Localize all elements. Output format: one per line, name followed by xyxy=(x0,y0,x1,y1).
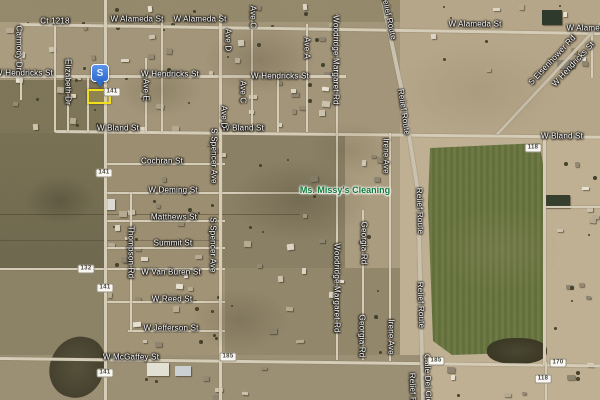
street-label: Ave C xyxy=(249,6,258,29)
vegetation xyxy=(153,200,156,203)
vegetation xyxy=(554,327,557,330)
satellite-map[interactable]: S Ms. Missy's Cleaning Ct 1218W Alameda … xyxy=(0,0,600,400)
building xyxy=(269,328,277,334)
vegetation xyxy=(443,6,445,8)
building xyxy=(257,264,262,268)
vegetation xyxy=(262,231,264,233)
crop-field xyxy=(420,140,546,356)
street-label: Ave D xyxy=(220,106,229,129)
vegetation xyxy=(211,204,214,207)
building xyxy=(149,35,155,40)
building xyxy=(557,229,563,232)
vegetation xyxy=(374,315,378,319)
road-segment xyxy=(54,20,56,132)
street-label: W Hendricks St xyxy=(141,70,199,79)
building xyxy=(175,366,191,376)
building xyxy=(188,287,193,291)
vegetation xyxy=(145,378,148,381)
vegetation xyxy=(195,307,199,311)
street-label: Ave C xyxy=(239,81,248,104)
building xyxy=(303,214,307,218)
street-label: W Hendricks St xyxy=(251,72,309,81)
street-label: Carmody Dr xyxy=(15,25,24,70)
building xyxy=(203,376,209,381)
building xyxy=(319,110,325,116)
vegetation xyxy=(227,56,229,58)
building xyxy=(582,187,589,190)
building xyxy=(155,342,162,347)
building xyxy=(6,28,14,33)
street-label: Woodridge Margaret Rd xyxy=(333,243,342,332)
building xyxy=(143,340,147,343)
building xyxy=(362,160,367,166)
street-label: Ave A xyxy=(303,37,312,59)
building xyxy=(148,54,154,59)
building xyxy=(156,204,160,208)
vegetation xyxy=(113,226,115,228)
terrain-south-center xyxy=(225,268,400,358)
vegetation xyxy=(188,208,192,212)
vegetation xyxy=(287,159,289,161)
vegetation xyxy=(321,63,325,67)
building xyxy=(579,283,584,287)
route-shield: 141 xyxy=(97,369,114,378)
street-label: W Hendricks St xyxy=(0,69,53,78)
vegetation xyxy=(379,351,382,354)
street-label: Ave D xyxy=(224,29,233,52)
building xyxy=(242,392,248,396)
street-label: Thompson Rd xyxy=(127,226,136,278)
vegetation xyxy=(257,43,261,47)
building xyxy=(567,375,575,380)
street-label: W Deming St xyxy=(148,186,197,195)
vegetation xyxy=(304,12,308,16)
street-label: Woodridge Margaret Rd xyxy=(332,15,341,104)
building xyxy=(33,124,39,130)
street-label: Georgia Rd xyxy=(360,222,369,265)
route-shield: 185 xyxy=(428,357,445,366)
route-shield: 141 xyxy=(104,88,121,97)
street-label: Irene Ave xyxy=(382,138,391,173)
marker-pin-tip xyxy=(96,81,104,87)
vegetation xyxy=(559,5,561,7)
vegetation xyxy=(457,394,460,397)
vegetation xyxy=(211,310,214,313)
vegetation xyxy=(576,371,580,375)
building xyxy=(148,6,153,12)
vegetation xyxy=(83,67,86,70)
terrain-south-grid xyxy=(105,268,225,358)
route-shield: 170 xyxy=(550,359,567,368)
vegetation xyxy=(443,58,446,61)
building xyxy=(287,244,295,251)
building xyxy=(121,59,129,62)
terrain-center-block xyxy=(223,133,345,268)
building xyxy=(286,307,293,311)
street-label: W Alameda St xyxy=(173,15,226,24)
vegetation xyxy=(570,286,574,290)
road-segment xyxy=(219,14,222,400)
building xyxy=(589,218,597,224)
building xyxy=(106,199,115,210)
building xyxy=(310,176,319,183)
street-label: W Jefferson St xyxy=(143,324,198,333)
vegetation xyxy=(215,337,218,340)
vegetation xyxy=(163,29,165,31)
vegetation xyxy=(94,109,96,111)
road-segment xyxy=(545,206,600,208)
vegetation xyxy=(313,195,316,198)
road-segment xyxy=(87,76,89,132)
route-shield: 141 xyxy=(97,284,114,293)
building xyxy=(176,284,183,290)
street-label: W Bland St xyxy=(541,132,583,141)
street-label: W Reed St xyxy=(152,295,192,304)
road-segment xyxy=(277,76,279,132)
building xyxy=(371,155,376,158)
building xyxy=(322,87,329,92)
street-label: W Alameda St xyxy=(448,20,501,29)
building xyxy=(291,89,296,93)
building xyxy=(173,306,179,312)
street-label: Relief Route xyxy=(408,373,419,400)
building xyxy=(563,12,567,17)
building xyxy=(195,255,202,259)
building xyxy=(575,162,579,167)
vegetation xyxy=(75,79,78,82)
street-label: Elizabeth Dr xyxy=(64,59,73,105)
business-label[interactable]: Ms. Missy's Cleaning xyxy=(300,185,390,195)
street-label: Georgia Rd xyxy=(358,315,367,358)
street-label: Relief Route xyxy=(415,188,426,235)
street-label: W Bland St xyxy=(97,124,139,133)
route-shield: 118 xyxy=(525,144,542,153)
vegetation xyxy=(249,226,252,229)
street-label: S Spencer Ave xyxy=(209,217,218,272)
vegetation xyxy=(193,10,196,13)
street-label: W McGaffey St xyxy=(103,353,159,362)
building xyxy=(519,4,524,10)
street-label: W Alameda St xyxy=(566,24,600,33)
street-label: Cochran St xyxy=(141,157,183,166)
street-label: Summit St xyxy=(154,239,193,248)
building xyxy=(302,268,306,274)
vegetation xyxy=(576,377,580,381)
vegetation xyxy=(315,38,319,42)
building xyxy=(235,58,240,63)
vegetation xyxy=(259,164,262,167)
building xyxy=(278,276,284,282)
building xyxy=(522,392,526,395)
road-segment xyxy=(591,30,593,78)
se-trees xyxy=(487,338,547,364)
vegetation xyxy=(36,98,39,101)
road-segment xyxy=(543,133,546,365)
route-shield: 118 xyxy=(535,375,552,384)
street-label: Irene Ave xyxy=(387,319,396,354)
vegetation xyxy=(485,40,488,43)
building xyxy=(177,222,184,226)
vegetation xyxy=(571,300,573,302)
street-label: W Van Buren St xyxy=(141,268,201,277)
building xyxy=(493,8,500,11)
building xyxy=(166,48,173,55)
place-marker[interactable]: S xyxy=(91,64,109,87)
street-label: Relief Route xyxy=(416,282,427,329)
building xyxy=(162,177,166,182)
building xyxy=(296,340,304,344)
route-shield: 141 xyxy=(96,169,113,178)
marker-pin-icon: S xyxy=(91,64,109,82)
building xyxy=(292,109,296,114)
building xyxy=(141,257,148,261)
building xyxy=(486,68,491,72)
building xyxy=(119,211,127,217)
building xyxy=(261,367,267,370)
building xyxy=(13,102,18,107)
route-shield: 185 xyxy=(220,353,237,362)
building xyxy=(504,393,511,397)
building xyxy=(108,292,113,298)
building xyxy=(447,367,455,374)
vegetation xyxy=(308,83,312,87)
vegetation xyxy=(198,212,200,214)
building xyxy=(133,322,141,328)
building xyxy=(542,10,562,25)
vegetation xyxy=(377,290,379,292)
building xyxy=(147,363,169,376)
road-segment xyxy=(104,0,107,400)
street-label: W Alameda St xyxy=(110,15,163,24)
vegetation xyxy=(308,99,312,103)
building xyxy=(303,4,308,10)
vegetation xyxy=(155,380,158,383)
vegetation xyxy=(199,340,203,344)
building xyxy=(374,177,380,182)
building xyxy=(582,61,588,66)
vegetation xyxy=(76,124,79,127)
vegetation xyxy=(593,176,597,180)
building xyxy=(322,101,331,108)
building xyxy=(319,239,325,243)
street-label: Matthews St xyxy=(151,213,197,222)
building xyxy=(238,40,244,46)
building xyxy=(319,37,325,41)
building xyxy=(586,296,591,300)
building xyxy=(431,34,436,39)
building xyxy=(451,375,455,380)
route-shield: 132 xyxy=(78,265,95,274)
vegetation xyxy=(115,263,119,267)
building xyxy=(244,241,251,247)
street-label: S Spencer Ave xyxy=(210,128,219,183)
marker-glyph: S xyxy=(97,68,104,79)
vegetation xyxy=(588,234,590,236)
building xyxy=(70,118,77,125)
street-label: Ave E xyxy=(142,79,151,101)
building xyxy=(115,225,120,231)
street-label: Ct 1218 xyxy=(40,17,69,26)
vegetation xyxy=(231,305,233,307)
vegetation xyxy=(188,102,190,104)
vegetation xyxy=(115,8,119,12)
vegetation xyxy=(564,162,568,166)
building xyxy=(91,55,96,60)
